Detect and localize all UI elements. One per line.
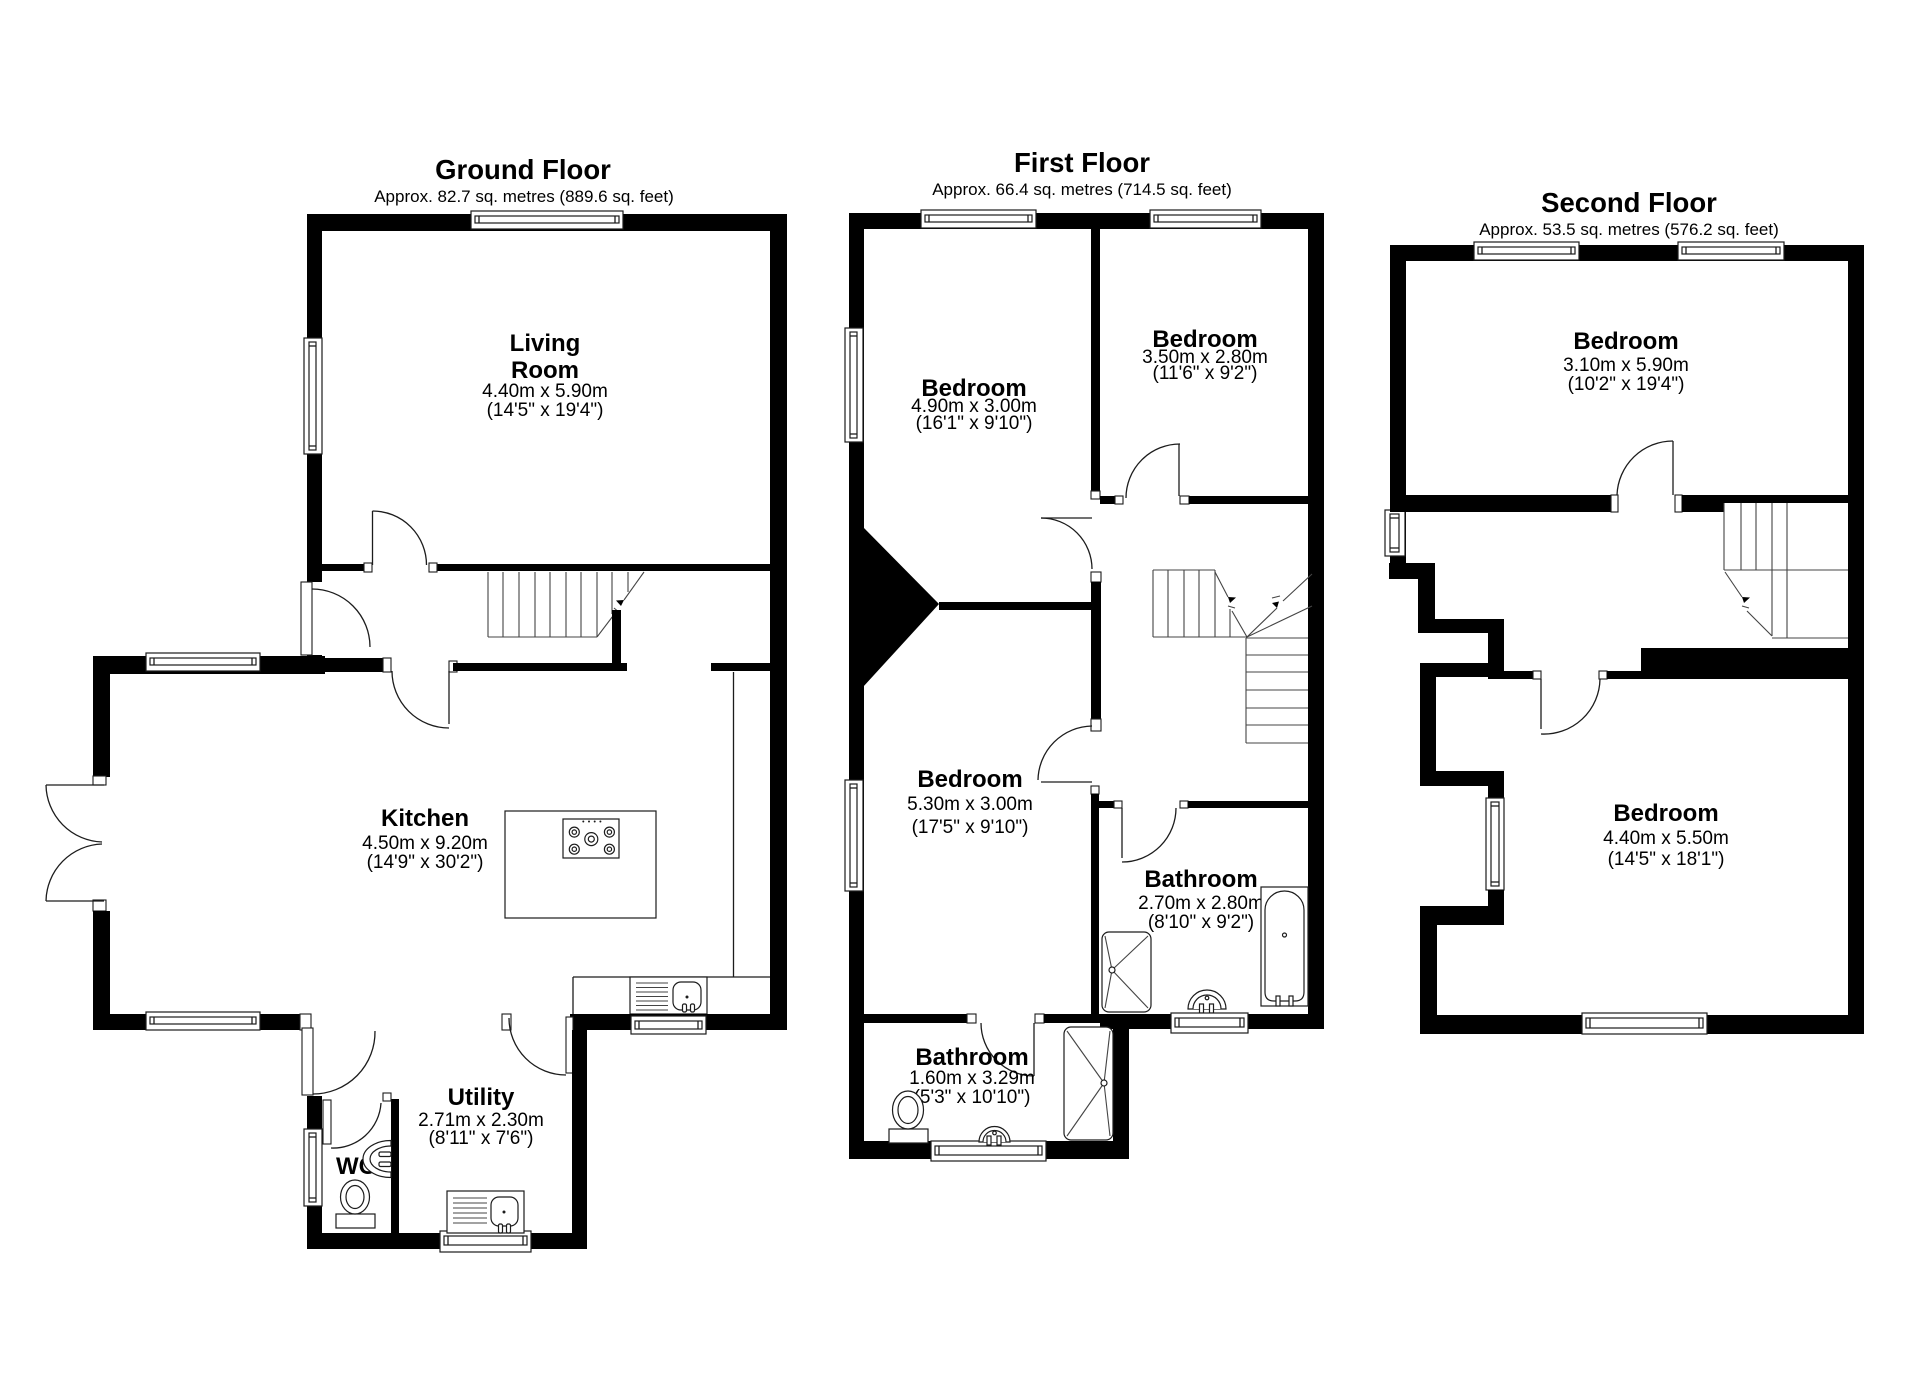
svg-text:(5'3" x 10'10"): (5'3" x 10'10"): [914, 1087, 1031, 1108]
svg-text:Ground Floor: Ground Floor: [435, 154, 611, 185]
svg-text:Bedroom: Bedroom: [1613, 800, 1718, 827]
svg-text:(8'11" x 7'6"): (8'11" x 7'6"): [429, 1128, 534, 1149]
svg-text:4.50m x 9.20m: 4.50m x 9.20m: [362, 833, 488, 854]
svg-text:1.60m x 3.29m: 1.60m x 3.29m: [909, 1068, 1035, 1089]
svg-text:(11'6" x 9'2"): (11'6" x 9'2"): [1153, 363, 1258, 384]
svg-text:Approx. 66.4 sq. metres (714.5: Approx. 66.4 sq. metres (714.5 sq. feet): [932, 180, 1232, 199]
svg-text:Second Floor: Second Floor: [1541, 187, 1717, 218]
svg-text:Bathroom: Bathroom: [915, 1044, 1028, 1071]
svg-text:Bathroom: Bathroom: [1144, 866, 1257, 893]
svg-text:(14'5" x 19'4"): (14'5" x 19'4"): [487, 400, 604, 421]
svg-text:4.40m x 5.50m: 4.40m x 5.50m: [1603, 828, 1729, 849]
svg-text:3.10m x 5.90m: 3.10m x 5.90m: [1563, 355, 1689, 376]
svg-text:(10'2" x 19'4"): (10'2" x 19'4"): [1568, 374, 1685, 395]
svg-text:(17'5" x 9'10"): (17'5" x 9'10"): [912, 817, 1029, 838]
svg-text:4.40m x 5.90m: 4.40m x 5.90m: [482, 381, 608, 402]
svg-text:Kitchen: Kitchen: [381, 805, 469, 832]
svg-text:Living: Living: [510, 330, 581, 357]
svg-text:Room: Room: [511, 357, 579, 384]
svg-text:Bedroom: Bedroom: [917, 766, 1022, 793]
svg-text:(16'1" x 9'10"): (16'1" x 9'10"): [916, 413, 1033, 434]
svg-text:Approx. 53.5 sq. metres (576.2: Approx. 53.5 sq. metres (576.2 sq. feet): [1479, 220, 1779, 239]
svg-text:2.70m x 2.80m: 2.70m x 2.80m: [1138, 893, 1264, 914]
svg-text:Approx. 82.7 sq. metres (889.6: Approx. 82.7 sq. metres (889.6 sq. feet): [374, 187, 674, 206]
svg-text:(14'9" x 30'2"): (14'9" x 30'2"): [367, 852, 484, 873]
svg-text:5.30m x 3.00m: 5.30m x 3.00m: [907, 794, 1033, 815]
svg-text:(8'10" x 9'2"): (8'10" x 9'2"): [1148, 912, 1254, 933]
svg-text:First Floor: First Floor: [1014, 147, 1150, 178]
svg-text:Bedroom: Bedroom: [1573, 328, 1678, 355]
svg-text:Utility: Utility: [448, 1084, 515, 1111]
svg-text:(14'5" x 18'1"): (14'5" x 18'1"): [1608, 849, 1725, 870]
